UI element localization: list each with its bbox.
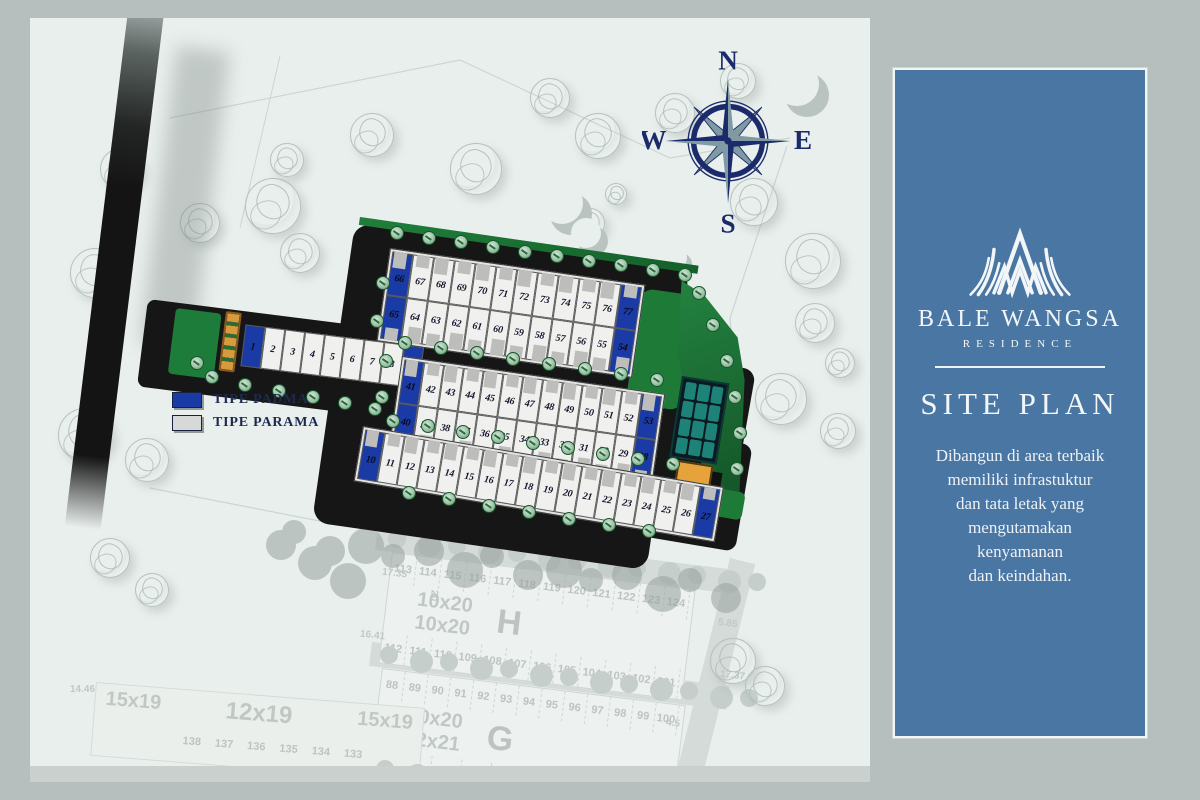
legend-swatch bbox=[172, 392, 202, 408]
legend-label: TIPE PARAMA bbox=[213, 415, 319, 431]
legend-item: TIPE PARAMA bbox=[172, 415, 319, 431]
description-line: dan keindahan. bbox=[895, 564, 1145, 588]
site-plan-map: 113114115116117118119120121122123124 10x… bbox=[30, 18, 870, 782]
brand-title: BALE WANGSA bbox=[895, 306, 1145, 333]
description-line: dan tata letak yang bbox=[895, 492, 1145, 516]
legend-swatch bbox=[172, 415, 202, 431]
legend-item: TIPE PADMA bbox=[172, 392, 319, 408]
compass-south-label: S bbox=[720, 208, 735, 236]
panel-description: Dibangun di area terbaikmemiliki infrast… bbox=[895, 444, 1145, 589]
info-panel: BALE WANGSA RESIDENCE SITE PLAN Dibangun… bbox=[893, 68, 1147, 738]
bale-wangsa-logo-icon bbox=[955, 220, 1085, 298]
brand-subtitle: RESIDENCE bbox=[895, 338, 1145, 350]
legend-label: TIPE PADMA bbox=[213, 392, 308, 408]
compass-rose-icon: N E S W bbox=[642, 46, 814, 236]
description-line: memiliki infrastuktur bbox=[895, 468, 1145, 492]
compass-north-label: N bbox=[718, 46, 738, 76]
description-line: Dibangun di area terbaik bbox=[895, 444, 1145, 468]
compass-west-label: W bbox=[642, 125, 666, 155]
compass-east-label: E bbox=[794, 125, 812, 155]
divider bbox=[935, 366, 1105, 368]
legend: TIPE PADMA TIPE PARAMA bbox=[172, 392, 319, 438]
description-line: mengutamakan bbox=[895, 516, 1145, 540]
page-title: SITE PLAN bbox=[895, 386, 1145, 422]
description-line: kenyamanan bbox=[895, 540, 1145, 564]
